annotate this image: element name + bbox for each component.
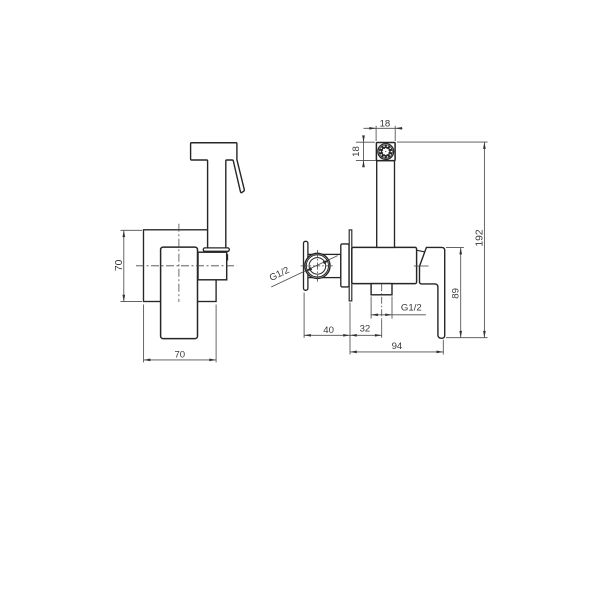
svg-text:192: 192 (474, 229, 485, 246)
svg-text:32: 32 (360, 324, 371, 335)
svg-text:18: 18 (380, 118, 391, 129)
svg-text:G1/2: G1/2 (401, 302, 422, 313)
svg-text:G1/2: G1/2 (268, 265, 292, 284)
svg-text:18: 18 (351, 146, 362, 157)
svg-text:70: 70 (174, 349, 185, 360)
svg-text:94: 94 (392, 341, 403, 352)
svg-text:40: 40 (323, 325, 334, 336)
svg-text:89: 89 (450, 288, 461, 299)
svg-text:70: 70 (114, 259, 125, 271)
